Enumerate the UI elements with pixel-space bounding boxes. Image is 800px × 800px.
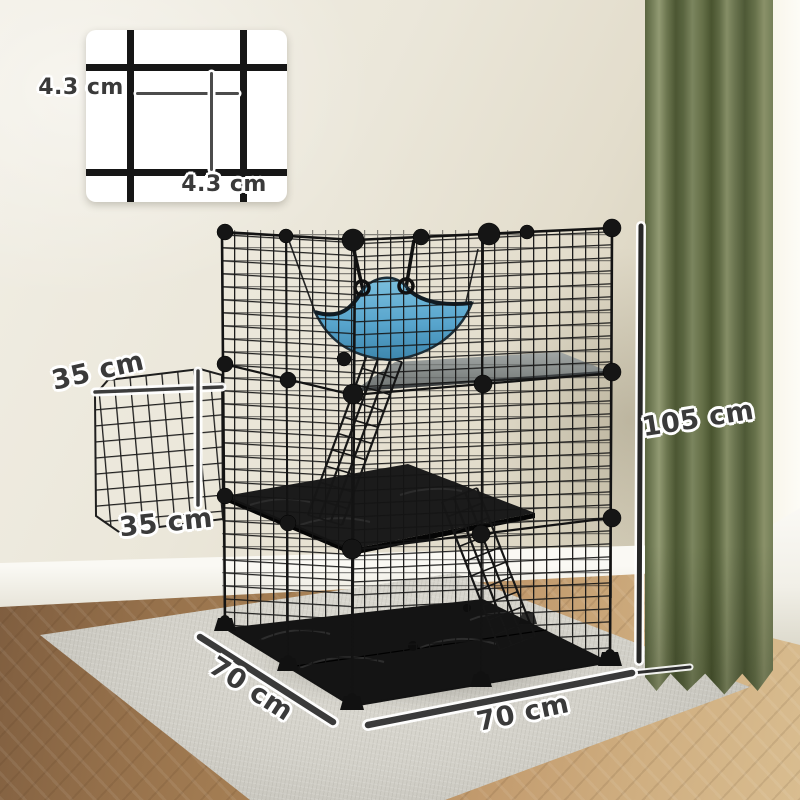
door-width-measure-line: [95, 387, 222, 392]
product-dimension-image: 4.3 cm 4.3 cm 35 cm 35 cm 105 cm 70 cm 7…: [0, 0, 800, 800]
cage-height-measure-line: [604, 226, 690, 676]
mesh-spacing-label-bottom: 4.3 cm: [181, 174, 267, 196]
mesh-spacing-label-left: 4.3 cm: [38, 77, 124, 99]
measurement-lines: [0, 0, 800, 800]
